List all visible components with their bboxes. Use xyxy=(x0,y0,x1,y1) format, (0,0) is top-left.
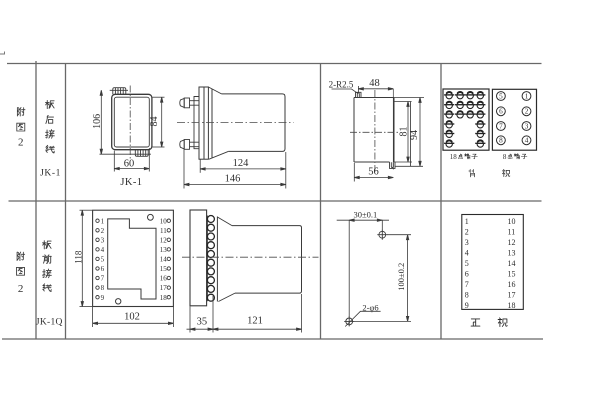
svg-text:12: 12 xyxy=(508,238,516,247)
svg-text:12: 12 xyxy=(160,236,168,244)
svg-text:13: 13 xyxy=(508,248,516,257)
svg-text:1: 1 xyxy=(525,92,529,100)
svg-text:JK-1Q: JK-1Q xyxy=(36,317,63,327)
svg-text:4: 4 xyxy=(101,246,105,254)
svg-text:2: 2 xyxy=(18,283,24,295)
svg-text:35: 35 xyxy=(197,317,208,328)
svg-text:8: 8 xyxy=(503,153,507,161)
svg-text:2-R2.5: 2-R2.5 xyxy=(329,80,354,90)
svg-text:15: 15 xyxy=(160,265,168,273)
svg-text:48: 48 xyxy=(369,78,380,89)
svg-text:10: 10 xyxy=(508,217,516,226)
svg-text:9: 9 xyxy=(101,294,105,302)
svg-text:100±0.2: 100±0.2 xyxy=(396,263,406,291)
svg-text:16: 16 xyxy=(508,280,516,289)
svg-text:1: 1 xyxy=(101,217,105,225)
svg-text:JK-1: JK-1 xyxy=(120,177,142,188)
svg-text:5: 5 xyxy=(499,92,503,100)
svg-text:2: 2 xyxy=(18,137,24,149)
svg-text:3: 3 xyxy=(465,238,469,247)
svg-text:13: 13 xyxy=(160,246,168,254)
svg-text:106: 106 xyxy=(92,114,103,129)
svg-text:2: 2 xyxy=(525,108,529,116)
svg-text:16: 16 xyxy=(160,275,168,283)
svg-text:118: 118 xyxy=(73,250,83,264)
svg-text:1: 1 xyxy=(465,217,469,226)
svg-text:4: 4 xyxy=(465,248,469,257)
svg-text:6: 6 xyxy=(499,108,503,116)
svg-text:18: 18 xyxy=(508,301,516,310)
svg-text:56: 56 xyxy=(368,167,379,178)
svg-text:124: 124 xyxy=(233,158,250,169)
svg-text:2: 2 xyxy=(101,227,105,235)
svg-text:11: 11 xyxy=(160,227,167,235)
svg-text:121: 121 xyxy=(247,316,263,327)
svg-text:84: 84 xyxy=(149,117,160,127)
svg-text:3: 3 xyxy=(525,122,529,130)
svg-text:JK-1: JK-1 xyxy=(40,169,61,179)
svg-text:18: 18 xyxy=(450,153,458,161)
svg-text:30±0.1: 30±0.1 xyxy=(354,210,378,220)
svg-text:17: 17 xyxy=(508,290,516,299)
svg-text:5: 5 xyxy=(465,259,469,268)
svg-text:7: 7 xyxy=(499,122,503,130)
svg-text:7: 7 xyxy=(101,275,105,283)
svg-text:18: 18 xyxy=(160,294,168,302)
svg-text:7: 7 xyxy=(465,280,469,289)
svg-text:60: 60 xyxy=(124,158,135,169)
svg-text:10: 10 xyxy=(160,217,168,225)
svg-text:17: 17 xyxy=(160,284,168,292)
svg-text:14: 14 xyxy=(160,256,168,264)
svg-text:102: 102 xyxy=(124,312,140,323)
svg-text:3: 3 xyxy=(101,236,105,244)
svg-text:2: 2 xyxy=(465,227,469,236)
svg-text:4: 4 xyxy=(525,137,529,145)
svg-text:8: 8 xyxy=(101,284,105,292)
svg-text:11: 11 xyxy=(508,227,516,236)
svg-text:8: 8 xyxy=(499,137,503,145)
svg-text:6: 6 xyxy=(465,269,469,278)
svg-text:5: 5 xyxy=(101,256,105,264)
svg-text:8: 8 xyxy=(465,290,469,299)
svg-text:15: 15 xyxy=(508,269,516,278)
svg-text:146: 146 xyxy=(225,174,241,185)
svg-text:14: 14 xyxy=(508,259,516,268)
svg-text:6: 6 xyxy=(101,265,105,273)
svg-text:9: 9 xyxy=(465,301,469,310)
svg-text:94: 94 xyxy=(409,130,420,140)
